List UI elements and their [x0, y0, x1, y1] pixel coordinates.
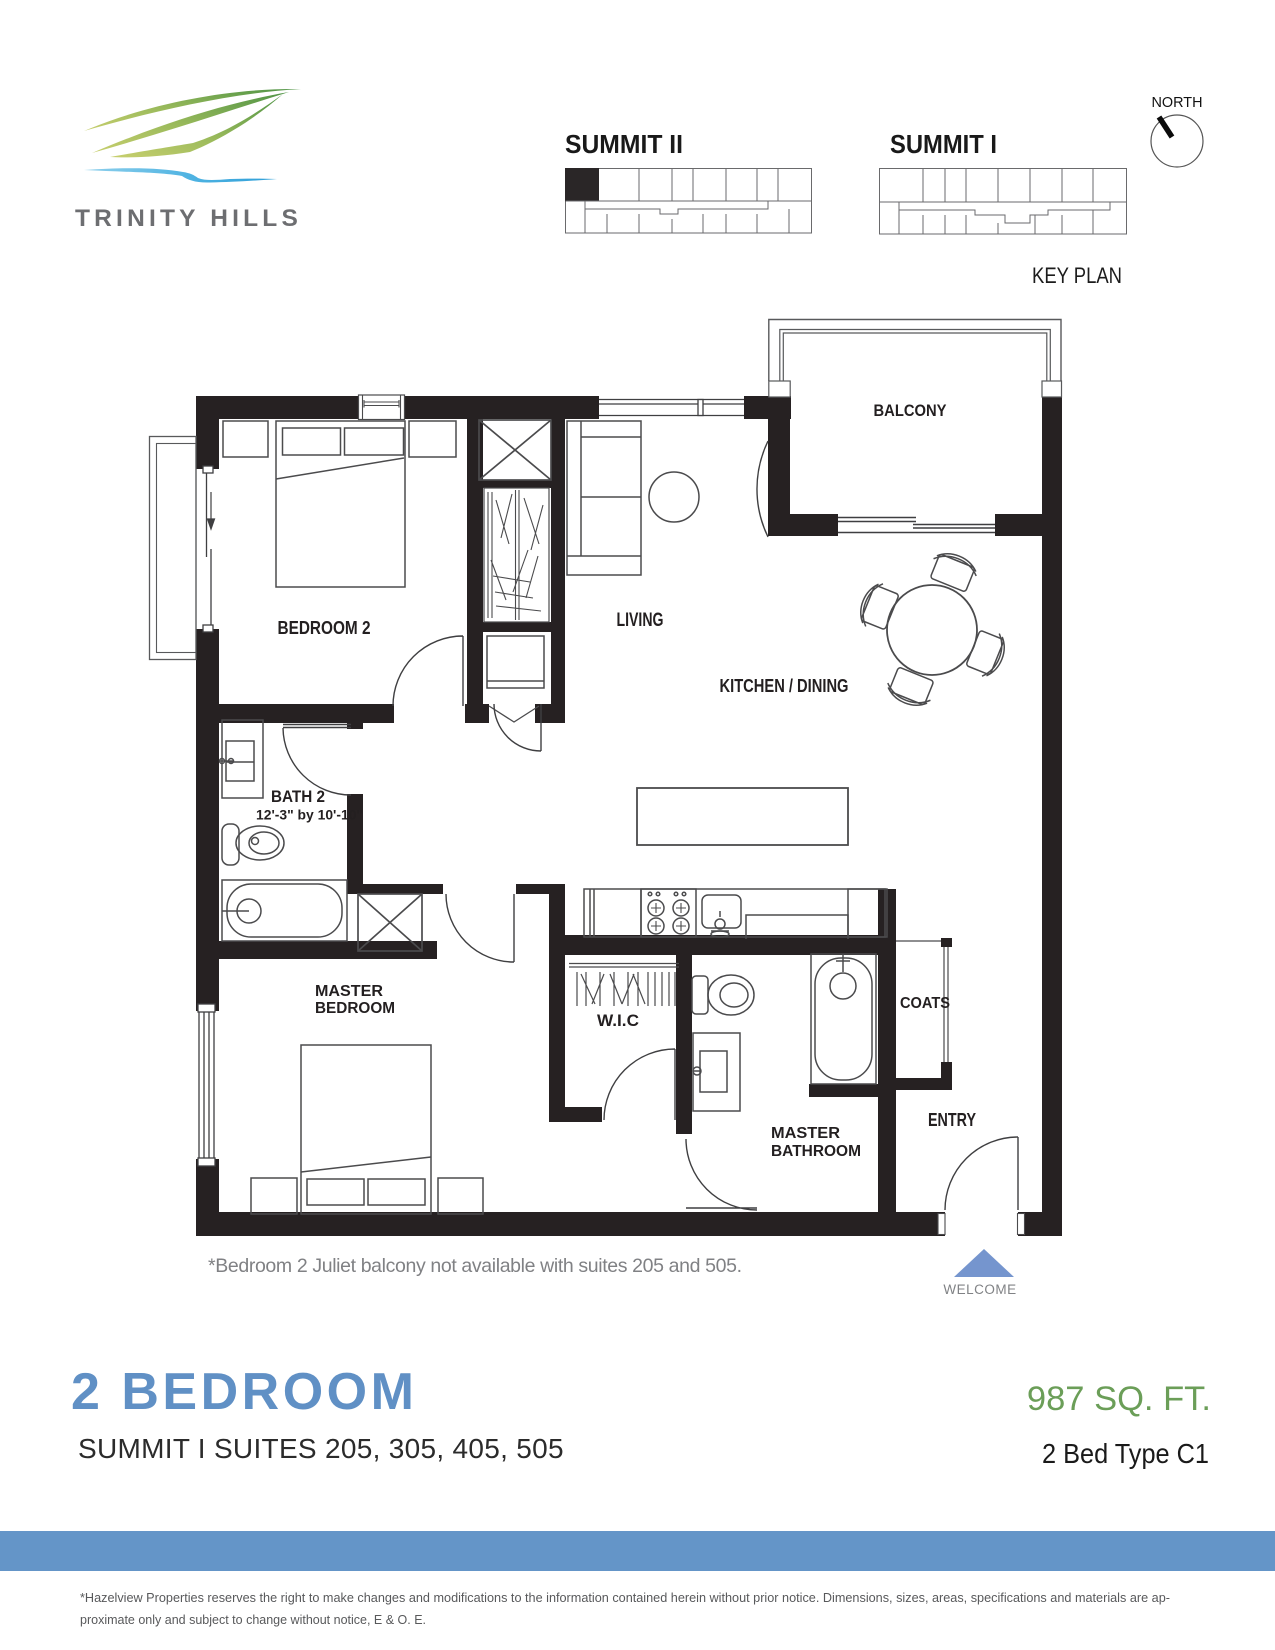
svg-text:BALCONY: BALCONY	[874, 401, 948, 420]
svg-text:*Hazelview Properties reserves: *Hazelview Properties reserves the right…	[80, 1591, 1170, 1605]
svg-text:BEDROOM: BEDROOM	[315, 1000, 395, 1017]
svg-text:2 BEDROOM: 2 BEDROOM	[71, 1363, 417, 1421]
svg-text:KEY PLAN: KEY PLAN	[1032, 263, 1122, 288]
svg-text:proximate only and subject to: proximate only and subject to change wit…	[80, 1613, 426, 1627]
svg-text:12'-3" by 10'-10": 12'-3" by 10'-10"	[256, 808, 363, 823]
svg-text:TRINITY HILLS: TRINITY HILLS	[75, 205, 302, 232]
svg-text:WELCOME: WELCOME	[943, 1282, 1016, 1297]
svg-text:SUMMIT II: SUMMIT II	[565, 129, 683, 159]
svg-text:987 SQ. FT.: 987 SQ. FT.	[1027, 1380, 1211, 1418]
svg-text:SUMMIT I: SUMMIT I	[890, 129, 997, 159]
svg-text:SUMMIT I SUITES 205, 305, 405,: SUMMIT I SUITES 205, 305, 405, 505	[78, 1433, 564, 1464]
svg-text:BATH 2: BATH 2	[271, 788, 325, 806]
svg-text:LIVING: LIVING	[617, 610, 664, 631]
svg-text:*Bedroom 2 Juliet balcony not: *Bedroom 2 Juliet balcony not available …	[208, 1255, 742, 1277]
svg-text:NORTH: NORTH	[1152, 94, 1203, 111]
svg-text:W.I.C: W.I.C	[597, 1012, 639, 1030]
svg-text:BATHROOM: BATHROOM	[771, 1143, 861, 1160]
svg-text:MASTER: MASTER	[315, 983, 383, 1000]
svg-text:MASTER: MASTER	[771, 1125, 840, 1142]
svg-text:COATS: COATS	[900, 995, 950, 1012]
svg-text:BEDROOM 2: BEDROOM 2	[278, 617, 371, 638]
svg-text:KITCHEN / DINING: KITCHEN / DINING	[720, 676, 849, 696]
svg-text:2 Bed Type C1: 2 Bed Type C1	[1042, 1438, 1209, 1469]
svg-text:ENTRY: ENTRY	[928, 1110, 976, 1130]
